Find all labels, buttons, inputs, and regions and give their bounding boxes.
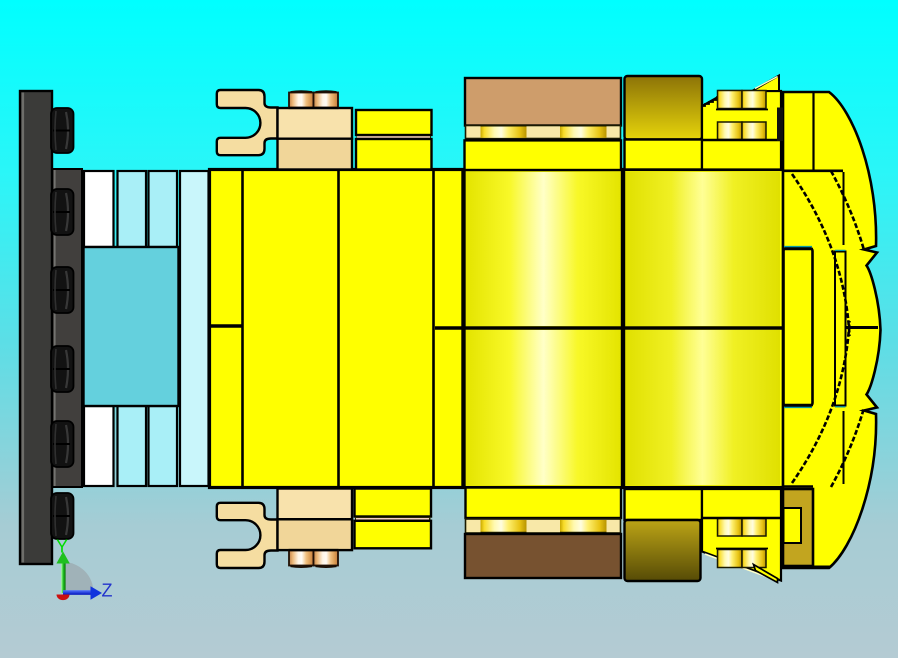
svg-text:Z: Z	[102, 581, 113, 601]
svg-text:Y: Y	[56, 537, 68, 557]
